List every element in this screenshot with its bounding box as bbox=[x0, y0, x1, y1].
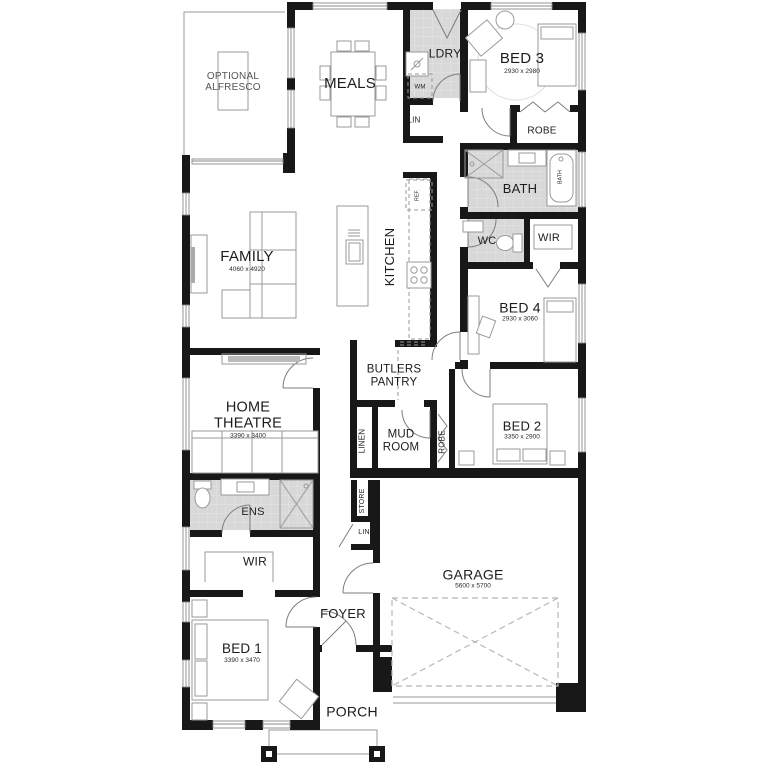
appliance-label-ref: REF. bbox=[415, 189, 421, 201]
room-label-wir-master: WIR bbox=[243, 555, 267, 568]
room-dims: 2930 x 2980 bbox=[500, 68, 544, 75]
room-label-garage: GARAGE 5600 x 5700 bbox=[442, 568, 503, 591]
garage-car-space bbox=[392, 598, 558, 703]
room-label-bed1: BED 1 3390 x 3470 bbox=[222, 642, 262, 664]
room-label-ldry: LDRY bbox=[429, 47, 462, 60]
room-name: FAMILY bbox=[220, 249, 273, 266]
room-name-line: THEATRE bbox=[214, 416, 282, 432]
room-label-robe-bed2: ROBE bbox=[439, 430, 448, 453]
kitchen-island bbox=[337, 206, 368, 306]
room-name-line: ROOM bbox=[383, 441, 420, 454]
room-dims: 3390 x 3470 bbox=[222, 657, 262, 664]
room-label-family: FAMILY 4060 x 4920 bbox=[220, 249, 273, 273]
room-name-line: OPTIONAL bbox=[205, 71, 261, 82]
room-name-line: ALFRESCO bbox=[205, 82, 261, 93]
fixture-label-bathtub: BATH bbox=[558, 170, 564, 184]
room-label-bed3: BED 3 2930 x 2980 bbox=[500, 51, 544, 75]
room-name-line: PANTRY bbox=[367, 376, 421, 389]
room-label-bath: BATH bbox=[503, 182, 538, 196]
room-label-bed2: BED 2 3350 x 2900 bbox=[503, 419, 542, 440]
room-name: BED 2 bbox=[503, 419, 542, 433]
room-dims: 2930 x 3060 bbox=[499, 316, 540, 323]
room-label-ens: ENS bbox=[241, 506, 264, 518]
room-label-robe-bed3: ROBE bbox=[527, 126, 556, 137]
room-label-butlers-pantry: BUTLERS PANTRY bbox=[367, 363, 421, 388]
room-name: BED 1 bbox=[222, 642, 262, 657]
tv-unit bbox=[191, 235, 207, 293]
room-name-line: MUD bbox=[383, 428, 420, 441]
room-name-line: BUTLERS bbox=[367, 363, 421, 376]
room-label-wir-upper: WIR bbox=[538, 232, 560, 244]
room-label-wc: WC bbox=[478, 235, 497, 247]
room-label-foyer: FOYER bbox=[320, 607, 366, 621]
room-label-linen: LINEN bbox=[359, 429, 368, 454]
room-dims: 3350 x 2900 bbox=[503, 434, 542, 441]
floor-plan: OPTIONAL ALFRESCO MEALS LDRY WM LIN BED … bbox=[0, 0, 768, 768]
room-label-optional-alfresco: OPTIONAL ALFRESCO bbox=[205, 71, 261, 93]
room-label-store: STORE bbox=[359, 489, 367, 514]
room-label-mud-room: MUD ROOM bbox=[383, 428, 420, 453]
appliance-label-wm: WM bbox=[414, 85, 425, 92]
room-label-bed4: BED 4 2930 x 3060 bbox=[499, 301, 540, 324]
room-dims: 4060 x 4920 bbox=[220, 266, 273, 273]
room-label-lin-lower: LIN bbox=[358, 529, 370, 537]
room-label-lin-upper: LIN bbox=[407, 117, 420, 126]
room-name: GARAGE bbox=[442, 568, 503, 583]
room-dims: 5600 x 5700 bbox=[442, 583, 503, 590]
porch-slab bbox=[261, 730, 385, 762]
room-name: BED 4 bbox=[499, 301, 540, 316]
room-label-home-theatre: HOME THEATRE 3390 x 3400 bbox=[214, 400, 282, 439]
room-label-porch: PORCH bbox=[326, 704, 378, 719]
room-name: BED 3 bbox=[500, 51, 544, 68]
room-label-kitchen: KITCHEN bbox=[383, 228, 397, 286]
room-dims: 3390 x 3400 bbox=[214, 432, 282, 439]
room-label-meals: MEALS bbox=[324, 76, 376, 93]
room-name-line: HOME bbox=[214, 400, 282, 416]
